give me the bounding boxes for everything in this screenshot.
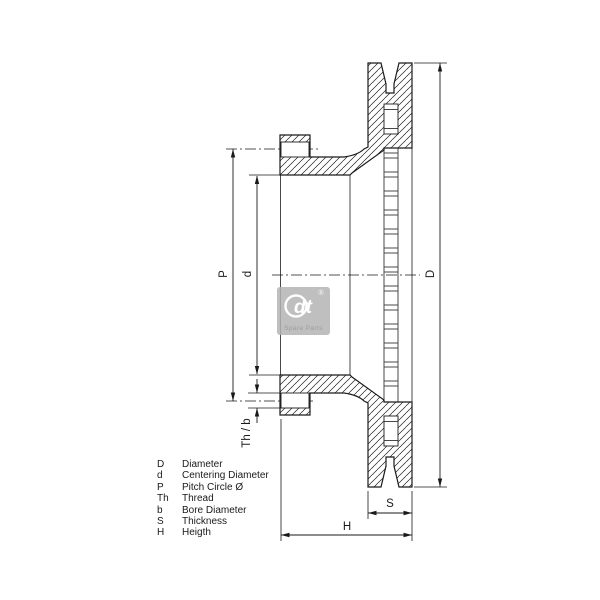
legend: D Diameter d Centering Diameter P Pitch … xyxy=(157,459,269,539)
vent-hole-top xyxy=(384,104,398,134)
legend-symbol: H xyxy=(157,527,182,538)
legend-symbol: b xyxy=(157,505,182,516)
legend-description: Thickness xyxy=(182,516,227,527)
legend-row: S Thickness xyxy=(157,516,269,527)
dimension-label-S: S xyxy=(386,498,394,510)
legend-row: H Heigth xyxy=(157,527,269,538)
legend-row: b Bore Diameter xyxy=(157,505,269,516)
legend-symbol: Th xyxy=(157,493,182,504)
dimension-label-H: H xyxy=(343,521,351,533)
dimension-label-P: P xyxy=(218,270,230,278)
dt-watermark: dt ® Spare Parts xyxy=(277,287,330,335)
legend-description: Centering Diameter xyxy=(182,470,269,481)
legend-symbol: d xyxy=(157,470,182,481)
vane-lines xyxy=(385,153,398,386)
dt-registered-mark: ® xyxy=(318,289,324,297)
legend-row: Th Thread xyxy=(157,493,269,504)
bolt-hole-bottom xyxy=(281,393,309,408)
legend-description: Pitch Circle Ø xyxy=(182,482,243,493)
dimension-label-d: d xyxy=(242,271,254,277)
legend-symbol: P xyxy=(157,482,182,493)
legend-description: Heigth xyxy=(182,527,211,538)
dimension-H: H xyxy=(281,521,412,537)
legend-description: Thread xyxy=(182,493,214,504)
dimension-Th-b: Th / b xyxy=(241,379,259,448)
legend-symbol: D xyxy=(157,459,182,470)
brake-disc-section-drawing: D P d Th / b S H dt ® xyxy=(0,0,600,600)
dt-watermark-caption: Spare Parts xyxy=(284,325,323,332)
dimension-label-D: D xyxy=(425,270,437,278)
legend-row: d Centering Diameter xyxy=(157,470,269,481)
vent-hole-bottom xyxy=(384,416,398,446)
dimension-P: P xyxy=(218,149,235,401)
legend-description: Diameter xyxy=(182,459,223,470)
legend-description: Bore Diameter xyxy=(182,505,246,516)
legend-row: P Pitch Circle Ø xyxy=(157,482,269,493)
legend-symbol: S xyxy=(157,516,182,527)
dt-brand-text: dt xyxy=(294,297,313,318)
dimension-label-Th-b: Th / b xyxy=(241,418,253,447)
dimension-S: S xyxy=(368,498,412,515)
technical-drawing-page: D P d Th / b S H dt ® xyxy=(0,0,600,600)
centerlines xyxy=(226,149,420,401)
disc-section-bottom-half xyxy=(280,375,412,487)
dimension-d: d xyxy=(242,176,259,375)
bolt-hole-top xyxy=(281,142,309,157)
legend-row: D Diameter xyxy=(157,459,269,470)
dimension-D: D xyxy=(425,63,442,487)
